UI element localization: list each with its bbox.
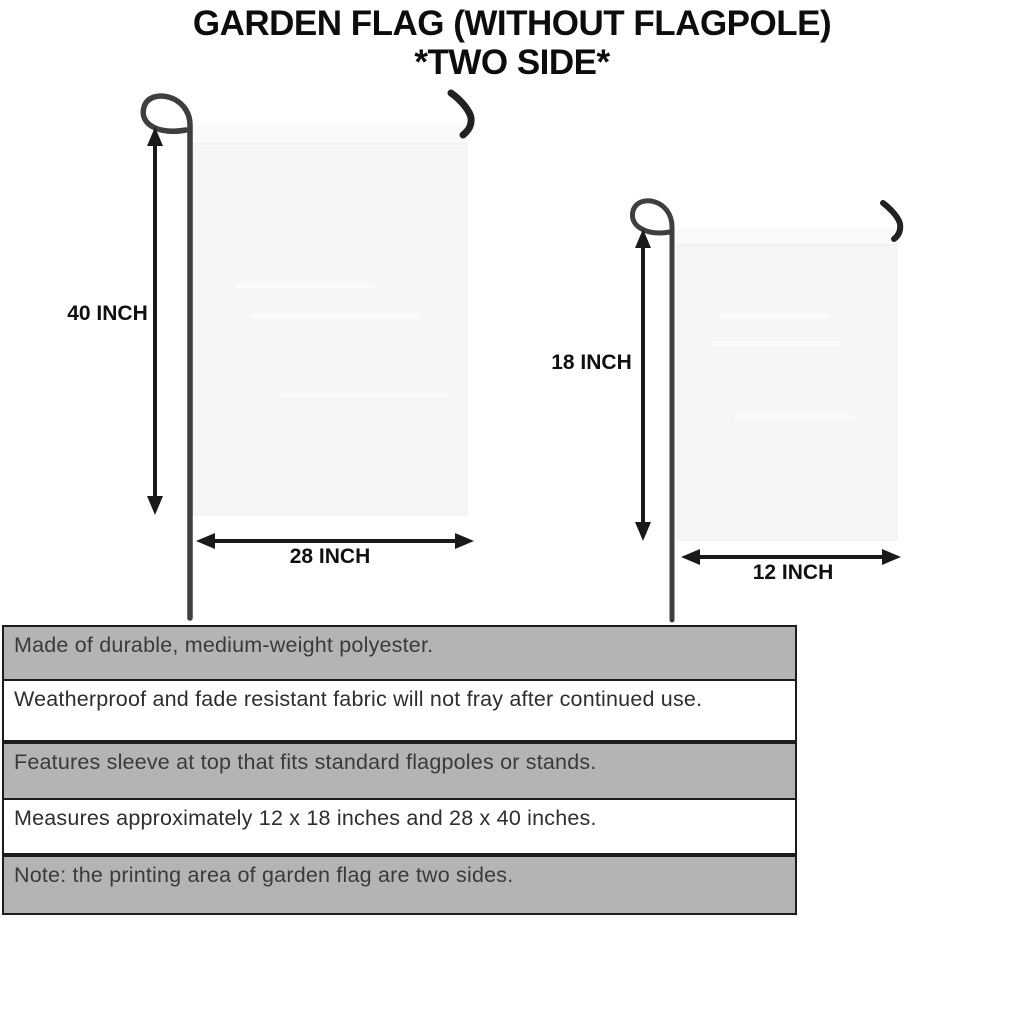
- fabric-crease: [735, 415, 855, 420]
- flagpole-icon: [632, 201, 672, 620]
- title-block: GARDEN FLAG (WITHOUT FLAGPOLE) *TWO SIDE…: [0, 4, 1024, 82]
- height-arrow: [635, 229, 651, 541]
- flag-sleeve: [677, 230, 897, 244]
- flag-canvas: [193, 127, 467, 515]
- large-flag-illustration: [60, 85, 480, 625]
- flagpole-icon: [143, 96, 190, 618]
- page-subtitle: *TWO SIDE*: [0, 44, 1024, 82]
- page-title: GARDEN FLAG (WITHOUT FLAGPOLE): [0, 4, 1024, 44]
- feature-row: Measures approximately 12 x 18 inches an…: [2, 800, 797, 855]
- fabric-crease: [720, 313, 830, 318]
- large-flag-width-label: 28 INCH: [265, 545, 395, 569]
- feature-row: Features sleeve at top that fits standar…: [2, 742, 797, 800]
- feature-row: Note: the printing area of garden flag a…: [2, 855, 797, 915]
- feature-row: Made of durable, medium-weight polyester…: [2, 625, 797, 681]
- fabric-crease: [250, 313, 420, 318]
- fabric-crease: [710, 341, 840, 346]
- feature-text: Weatherproof and fade resistant fabric w…: [14, 687, 702, 711]
- large-flag-height-label: 40 INCH: [60, 302, 155, 326]
- feature-text: Made of durable, medium-weight polyester…: [14, 633, 433, 657]
- flag-canvas: [677, 230, 897, 540]
- small-flag-width-label: 12 INCH: [728, 561, 858, 585]
- feature-list: Made of durable, medium-weight polyester…: [2, 625, 797, 915]
- fabric-crease: [280, 393, 450, 398]
- large-flag-diagram: [60, 85, 480, 625]
- flag-sleeve: [193, 127, 467, 143]
- feature-text: Measures approximately 12 x 18 inches an…: [14, 806, 597, 830]
- feature-text: Note: the printing area of garden flag a…: [14, 863, 513, 887]
- fabric-crease: [235, 283, 375, 288]
- feature-text: Features sleeve at top that fits standar…: [14, 750, 596, 774]
- small-flag-height-label: 18 INCH: [545, 351, 638, 375]
- feature-row: Weatherproof and fade resistant fabric w…: [2, 681, 797, 742]
